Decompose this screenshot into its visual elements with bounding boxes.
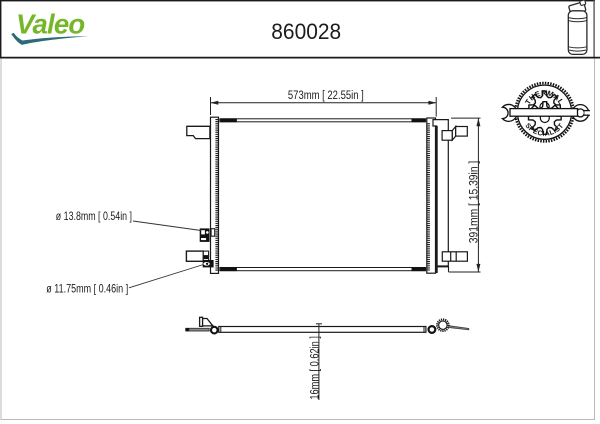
svg-text:391mm [ 15.39in ]: 391mm [ 15.39in ] (468, 161, 480, 244)
svg-text:860028: 860028 (271, 19, 341, 44)
svg-text:ø 11.75mm [ 0.46in ]: ø 11.75mm [ 0.46in ] (46, 282, 128, 295)
svg-text:16mm [ 0.62in ]: 16mm [ 0.62in ] (309, 336, 321, 400)
svg-text:Valeo: Valeo (16, 8, 84, 39)
svg-text:573mm [ 22.55in ]: 573mm [ 22.55in ] (288, 90, 364, 102)
svg-text:ø 13.8mm [ 0.54in ]: ø 13.8mm [ 0.54in ] (56, 210, 132, 223)
